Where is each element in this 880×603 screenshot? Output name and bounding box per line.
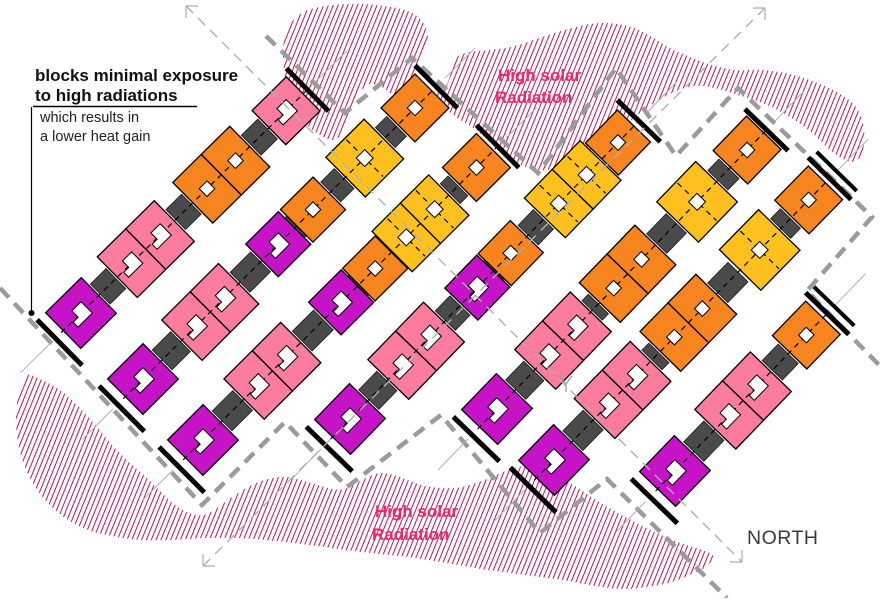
svg-text:Radiation: Radiation	[372, 525, 449, 544]
svg-text:High solar: High solar	[375, 502, 459, 521]
svg-text:blocks minimal exposure: blocks minimal exposure	[35, 66, 238, 85]
svg-text:to high radiations: to high radiations	[35, 86, 178, 105]
svg-text:a lower heat gain: a lower heat gain	[40, 129, 150, 145]
svg-text:Radiation: Radiation	[495, 88, 572, 107]
svg-text:NORTH: NORTH	[747, 527, 818, 549]
svg-text:High solar: High solar	[498, 66, 582, 85]
svg-text:which results in: which results in	[39, 110, 139, 126]
